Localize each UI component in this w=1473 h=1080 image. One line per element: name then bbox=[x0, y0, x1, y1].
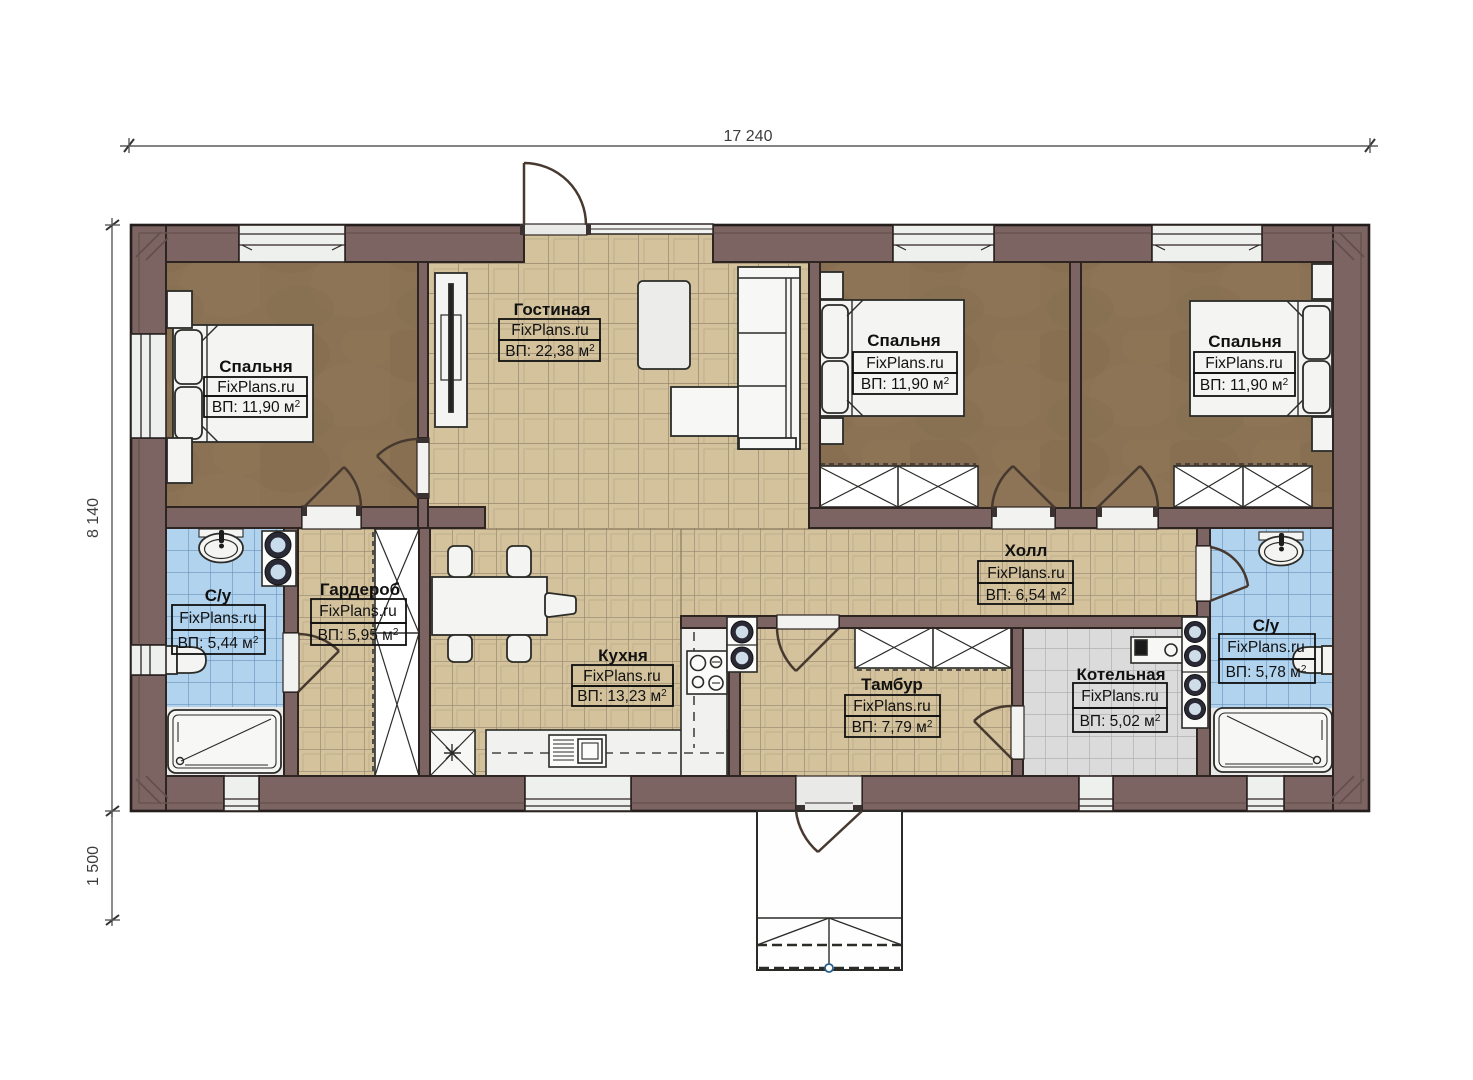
svg-text:FixPlans.ru: FixPlans.ru bbox=[853, 698, 931, 715]
svg-text:ВП: 22,38 м2: ВП: 22,38 м2 bbox=[505, 343, 595, 360]
svg-text:Тамбур: Тамбур bbox=[861, 675, 923, 694]
svg-text:ВП: 11,90 м2: ВП: 11,90 м2 bbox=[212, 399, 301, 416]
svg-text:Спальня: Спальня bbox=[867, 331, 940, 350]
svg-text:FixPlans.ru: FixPlans.ru bbox=[319, 603, 397, 620]
svg-text:Спальня: Спальня bbox=[1208, 332, 1281, 351]
svg-text:ВП: 11,90 м2: ВП: 11,90 м2 bbox=[861, 376, 950, 393]
svg-text:ВП: 5,78 м2: ВП: 5,78 м2 bbox=[1226, 664, 1307, 681]
svg-text:ВП: 11,90 м2: ВП: 11,90 м2 bbox=[1200, 377, 1289, 394]
svg-text:FixPlans.ru: FixPlans.ru bbox=[866, 355, 944, 372]
svg-text:ВП: 5,02 м2: ВП: 5,02 м2 bbox=[1080, 713, 1161, 730]
svg-text:ВП: 6,54 м2: ВП: 6,54 м2 bbox=[986, 587, 1067, 604]
svg-text:1 500: 1 500 bbox=[85, 846, 102, 886]
svg-text:Холл: Холл bbox=[1005, 541, 1048, 560]
svg-text:FixPlans.ru: FixPlans.ru bbox=[179, 610, 257, 627]
svg-text:С/у: С/у bbox=[1253, 616, 1280, 635]
svg-text:FixPlans.ru: FixPlans.ru bbox=[583, 668, 661, 685]
svg-text:ВП: 5,44 м2: ВП: 5,44 м2 bbox=[178, 635, 259, 652]
svg-text:Гостиная: Гостиная bbox=[514, 300, 591, 319]
svg-text:ВП: 5,95 м2: ВП: 5,95 м2 bbox=[318, 627, 399, 644]
svg-text:FixPlans.ru: FixPlans.ru bbox=[1205, 355, 1283, 372]
svg-text:С/у: С/у bbox=[205, 586, 232, 605]
svg-text:FixPlans.ru: FixPlans.ru bbox=[1081, 688, 1159, 705]
svg-text:8 140: 8 140 bbox=[85, 498, 102, 538]
svg-text:Спальня: Спальня bbox=[219, 357, 292, 376]
svg-text:FixPlans.ru: FixPlans.ru bbox=[511, 322, 589, 339]
svg-text:FixPlans.ru: FixPlans.ru bbox=[217, 379, 295, 396]
svg-text:Котельная: Котельная bbox=[1076, 665, 1165, 684]
svg-text:Гардероб: Гардероб bbox=[320, 580, 400, 599]
svg-text:ВП: 7,79 м2: ВП: 7,79 м2 bbox=[852, 719, 933, 736]
svg-text:17 240: 17 240 bbox=[724, 128, 773, 145]
svg-text:FixPlans.ru: FixPlans.ru bbox=[987, 565, 1065, 582]
svg-text:ВП: 13,23 м2: ВП: 13,23 м2 bbox=[577, 688, 667, 705]
svg-text:Кухня: Кухня bbox=[598, 646, 648, 665]
svg-text:FixPlans.ru: FixPlans.ru bbox=[1227, 639, 1305, 656]
